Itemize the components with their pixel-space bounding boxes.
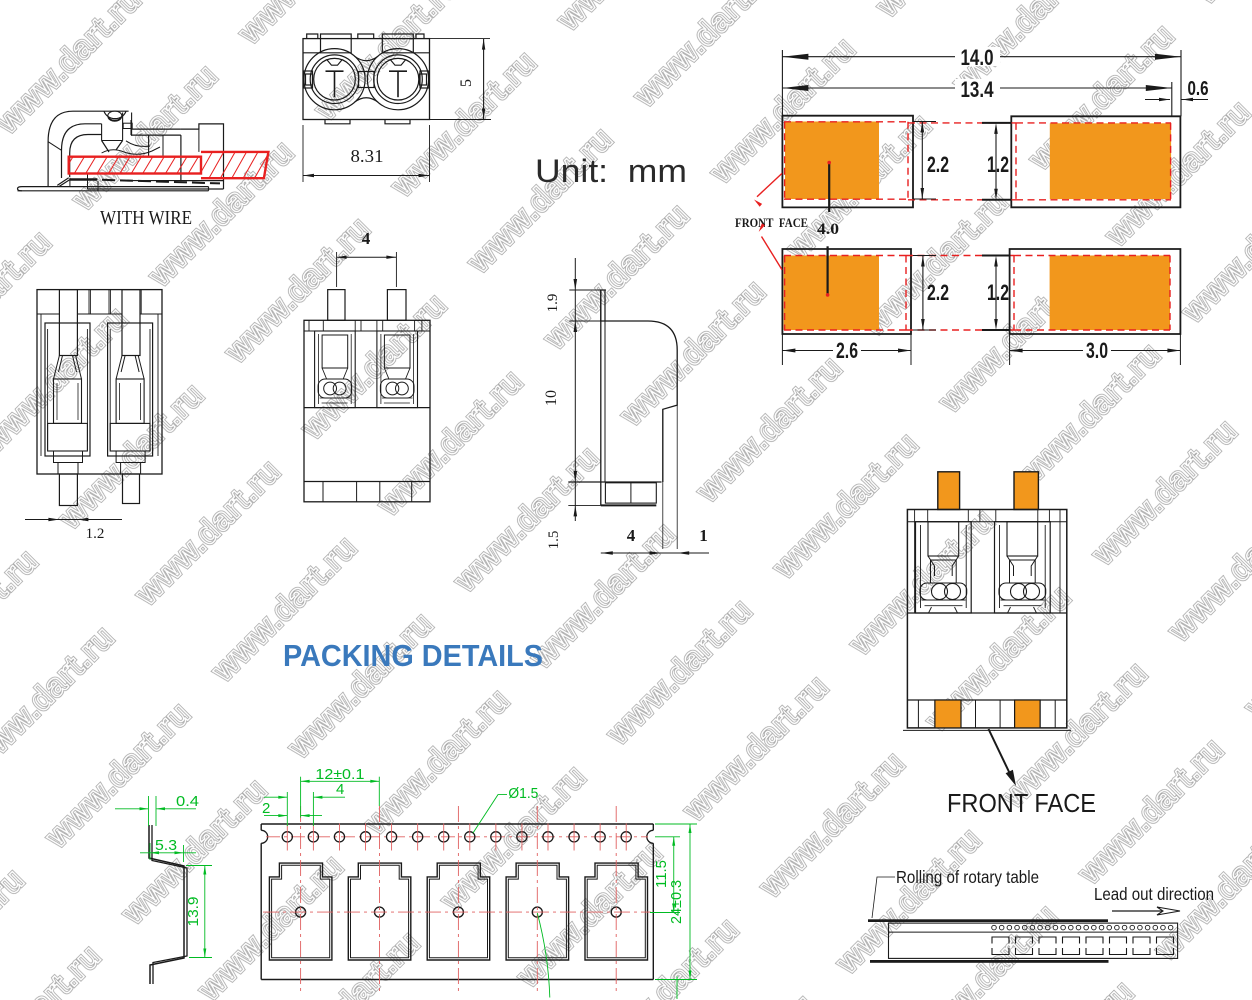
svg-text:13.9: 13.9 xyxy=(185,897,202,927)
svg-text:FRONT FACE: FRONT FACE xyxy=(735,216,808,230)
svg-text:1.2: 1.2 xyxy=(86,526,105,542)
svg-text:FRONT FACE: FRONT FACE xyxy=(947,788,1096,818)
svg-text:0.4: 0.4 xyxy=(176,793,199,810)
svg-text:Ø1.5: Ø1.5 xyxy=(508,785,538,802)
svg-text:8.31: 8.31 xyxy=(351,146,384,166)
svg-text:2: 2 xyxy=(262,800,270,817)
svg-text:10: 10 xyxy=(543,390,560,406)
svg-text:WITH WIRE: WITH WIRE xyxy=(100,207,192,229)
svg-text:Lead out direction: Lead out direction xyxy=(1094,884,1214,904)
svg-text:24±0.3: 24±0.3 xyxy=(668,880,685,924)
svg-text:2.2: 2.2 xyxy=(927,280,949,305)
svg-text:1.5: 1.5 xyxy=(546,531,562,550)
svg-text:4: 4 xyxy=(627,526,636,545)
svg-text:Unit: mm: Unit: mm xyxy=(535,153,687,189)
svg-text:0.6: 0.6 xyxy=(1188,78,1209,100)
svg-text:1: 1 xyxy=(699,526,708,545)
svg-text:1.2: 1.2 xyxy=(987,152,1009,177)
svg-text:5.3: 5.3 xyxy=(155,837,177,854)
svg-text:4.0: 4.0 xyxy=(817,221,839,238)
svg-text:4: 4 xyxy=(336,781,344,798)
svg-text:1.9: 1.9 xyxy=(545,294,561,313)
svg-text:Rolling of rotary table: Rolling of rotary table xyxy=(896,867,1039,887)
svg-text:PACKING DETAILS: PACKING DETAILS xyxy=(283,638,543,673)
svg-text:2.6: 2.6 xyxy=(836,338,858,363)
svg-text:4: 4 xyxy=(362,229,371,248)
svg-text:2.2: 2.2 xyxy=(927,152,949,177)
svg-text:3.0: 3.0 xyxy=(1086,338,1108,363)
svg-text:14.0: 14.0 xyxy=(961,45,994,70)
svg-text:1.2: 1.2 xyxy=(987,280,1009,305)
svg-text:13.4: 13.4 xyxy=(961,77,995,102)
svg-text:5: 5 xyxy=(458,79,475,87)
